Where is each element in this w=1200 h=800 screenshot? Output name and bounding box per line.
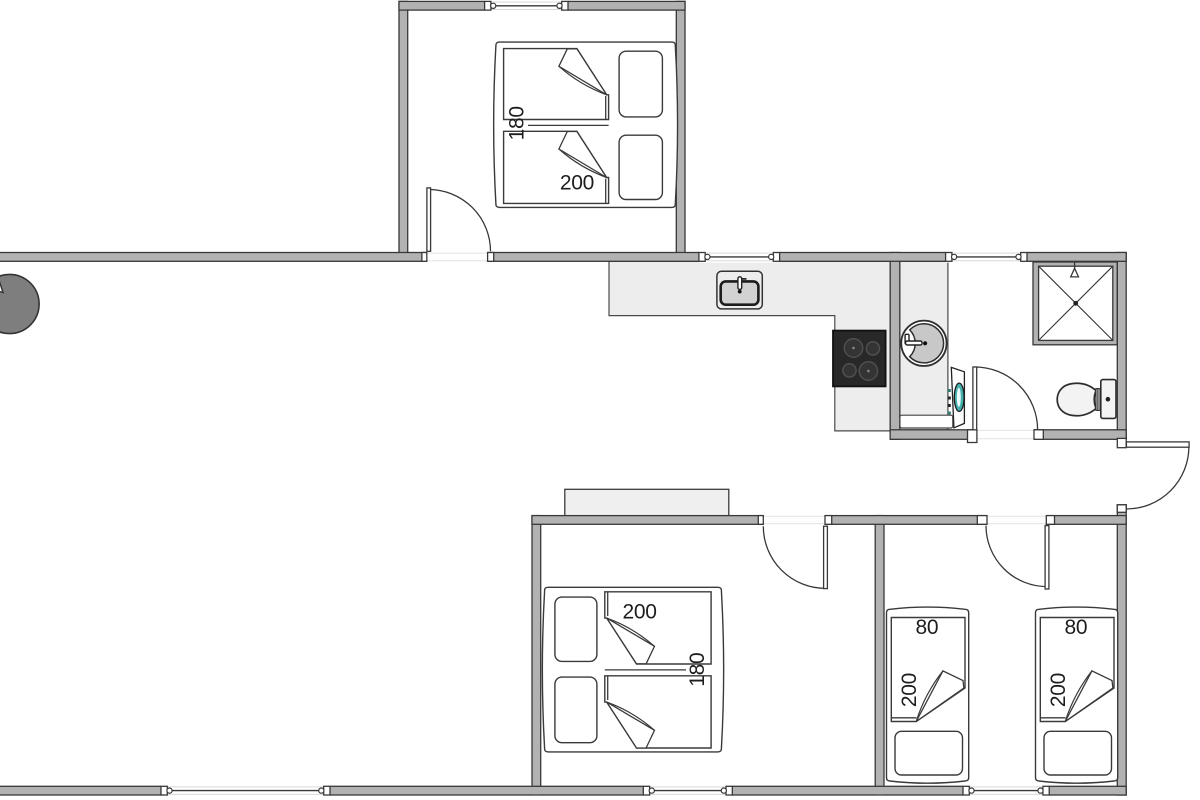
svg-text:200: 200 [623, 600, 657, 623]
svg-text:200: 200 [1047, 673, 1070, 707]
svg-text:180: 180 [506, 106, 529, 140]
svg-text:80: 80 [916, 616, 939, 639]
svg-text:80: 80 [1065, 616, 1088, 639]
svg-text:200: 200 [898, 673, 921, 707]
svg-text:200: 200 [560, 172, 594, 195]
svg-text:180: 180 [686, 653, 709, 687]
